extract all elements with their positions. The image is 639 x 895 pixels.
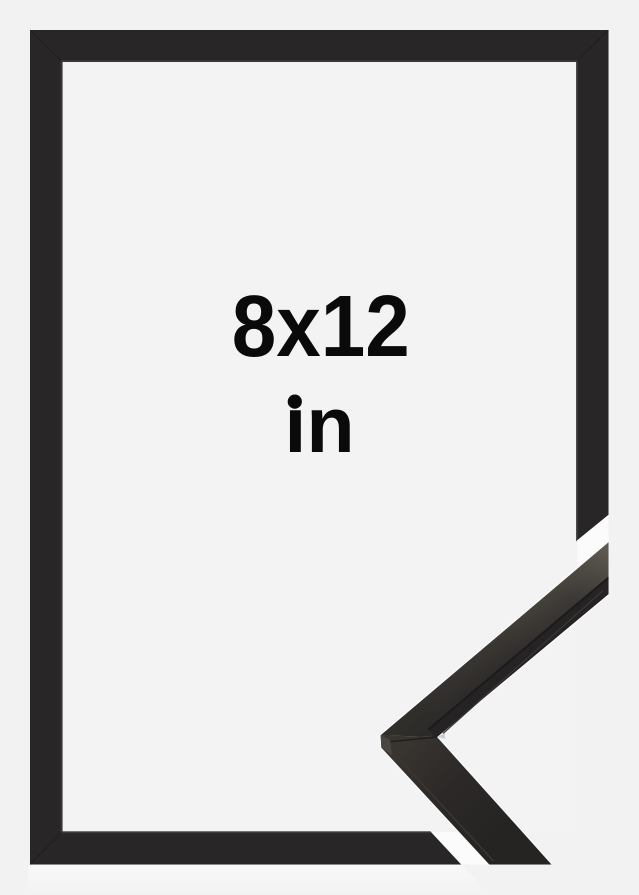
svg-text:ın: ın bbox=[284, 380, 354, 469]
svg-text:8x12: 8x12 bbox=[232, 278, 410, 375]
